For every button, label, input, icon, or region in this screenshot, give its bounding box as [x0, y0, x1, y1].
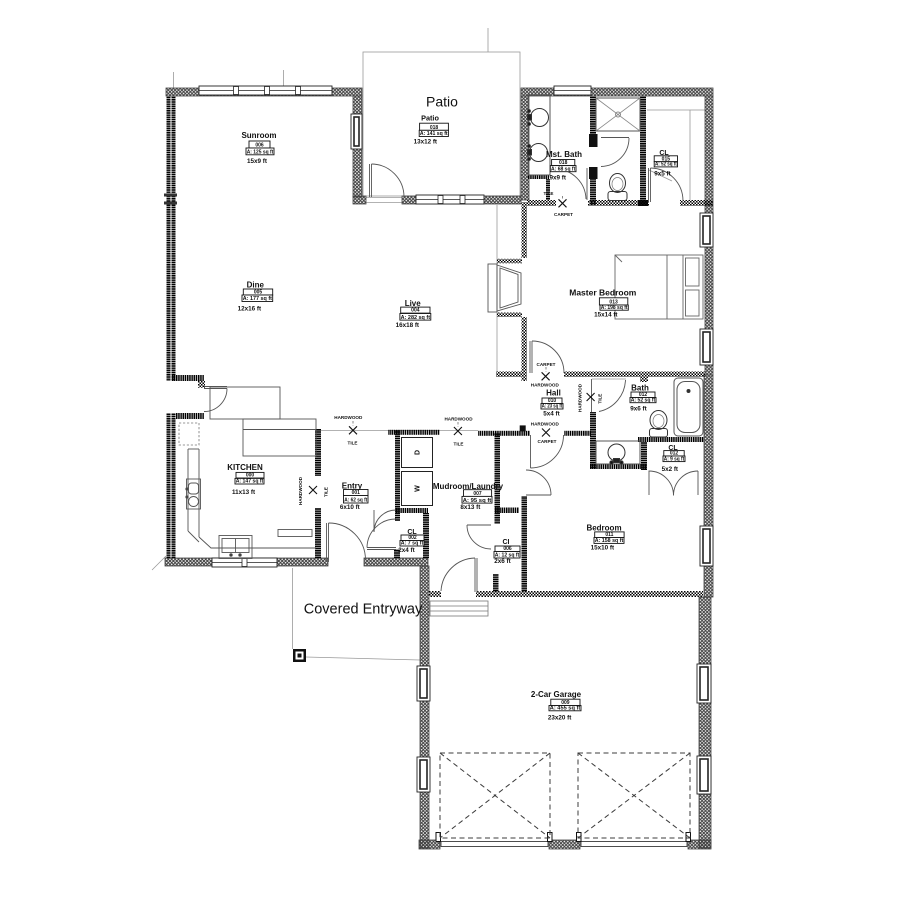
svg-text:13x12 ft: 13x12 ft — [414, 139, 438, 146]
svg-text:16x18 ft: 16x18 ft — [396, 322, 420, 329]
svg-text:A: 23 sq ft: A: 23 sq ft — [542, 404, 563, 410]
svg-text:Dine: Dine — [247, 280, 265, 289]
svg-text:TILE: TILE — [324, 487, 329, 497]
svg-text:W: W — [415, 485, 422, 492]
svg-text:23x20 ft: 23x20 ft — [548, 715, 572, 722]
svg-text:6x10 ft: 6x10 ft — [340, 504, 361, 511]
svg-text:A: 158 sq ft: A: 158 sq ft — [595, 538, 624, 544]
svg-text:9x9 ft: 9x9 ft — [549, 175, 566, 182]
svg-text:D: D — [415, 450, 422, 455]
svg-text:HARDWOOD: HARDWOOD — [298, 476, 303, 505]
svg-text:004: 004 — [411, 308, 420, 314]
svg-text:CI: CI — [503, 539, 510, 546]
svg-text:9x5 ft: 9x5 ft — [654, 171, 671, 178]
svg-text:HARDWOOD: HARDWOOD — [577, 383, 582, 412]
svg-text:Covered Entryway: Covered Entryway — [304, 602, 423, 618]
svg-text:5x4 ft: 5x4 ft — [543, 411, 560, 418]
svg-text:TILE: TILE — [454, 441, 464, 446]
svg-text:Live: Live — [405, 299, 422, 308]
svg-text:2-Car Garage: 2-Car Garage — [531, 690, 582, 699]
svg-text:HARDWOOD: HARDWOOD — [531, 421, 560, 426]
svg-text:TILE: TILE — [544, 191, 554, 196]
svg-text:Hall: Hall — [546, 389, 561, 398]
svg-text:A: 147 sq ft: A: 147 sq ft — [236, 479, 264, 485]
svg-text:HARDWOOD: HARDWOOD — [444, 416, 473, 421]
svg-text:TILE: TILE — [348, 441, 358, 446]
svg-text:5x2 ft: 5x2 ft — [662, 466, 679, 473]
svg-text:A: 125 sq ft: A: 125 sq ft — [247, 150, 274, 156]
svg-text:Patio: Patio — [426, 94, 458, 110]
svg-text:KITCHEN: KITCHEN — [227, 463, 263, 472]
svg-text:2x6 ft: 2x6 ft — [494, 558, 511, 565]
svg-text:A: 52 sq ft: A: 52 sq ft — [631, 397, 656, 403]
svg-text:A: 62 sq ft: A: 62 sq ft — [344, 498, 367, 504]
svg-text:A: 198 sq ft: A: 198 sq ft — [601, 305, 628, 311]
svg-text:A: 282 sq ft: A: 282 sq ft — [401, 315, 431, 321]
svg-text:Sunroom: Sunroom — [241, 131, 276, 140]
svg-text:Master Bedroom: Master Bedroom — [569, 288, 637, 298]
svg-text:15x14 ft: 15x14 ft — [594, 312, 618, 319]
svg-text:A: 177 sq ft: A: 177 sq ft — [243, 296, 273, 302]
svg-text:Mst. Bath: Mst. Bath — [546, 150, 582, 159]
svg-text:A: 7 sq ft: A: 7 sq ft — [401, 541, 424, 547]
svg-text:HARDWOOD: HARDWOOD — [531, 382, 560, 387]
svg-text:CARPET: CARPET — [537, 362, 556, 367]
svg-text:12x16 ft: 12x16 ft — [238, 306, 262, 313]
svg-text:HARDWOOD: HARDWOOD — [334, 415, 363, 420]
svg-text:Bedroom: Bedroom — [586, 524, 621, 533]
svg-text:15x10 ft: 15x10 ft — [591, 545, 615, 552]
svg-text:15x9 ft: 15x9 ft — [247, 158, 268, 165]
svg-text:CARPET: CARPET — [554, 212, 573, 217]
svg-text:A: 68 sq ft: A: 68 sq ft — [551, 166, 576, 172]
svg-text:9x6 ft: 9x6 ft — [630, 406, 647, 413]
svg-text:A: 52 sq ft: A: 52 sq ft — [655, 162, 677, 168]
svg-text:2x4 ft: 2x4 ft — [398, 547, 415, 554]
svg-text:11x13 ft: 11x13 ft — [232, 489, 256, 496]
svg-text:000: 000 — [246, 473, 255, 479]
svg-text:A: 9 sq ft: A: 9 sq ft — [664, 456, 685, 462]
svg-text:TILE: TILE — [597, 394, 602, 404]
svg-text:A: 95 sq ft: A: 95 sq ft — [463, 498, 492, 504]
svg-text:A: 141 sq ft: A: 141 sq ft — [420, 131, 448, 137]
svg-text:CARPET: CARPET — [538, 439, 557, 444]
svg-text:A: 455 sq ft: A: 455 sq ft — [550, 706, 581, 712]
svg-text:Patio: Patio — [421, 113, 439, 122]
svg-text:8x13 ft: 8x13 ft — [460, 504, 481, 511]
